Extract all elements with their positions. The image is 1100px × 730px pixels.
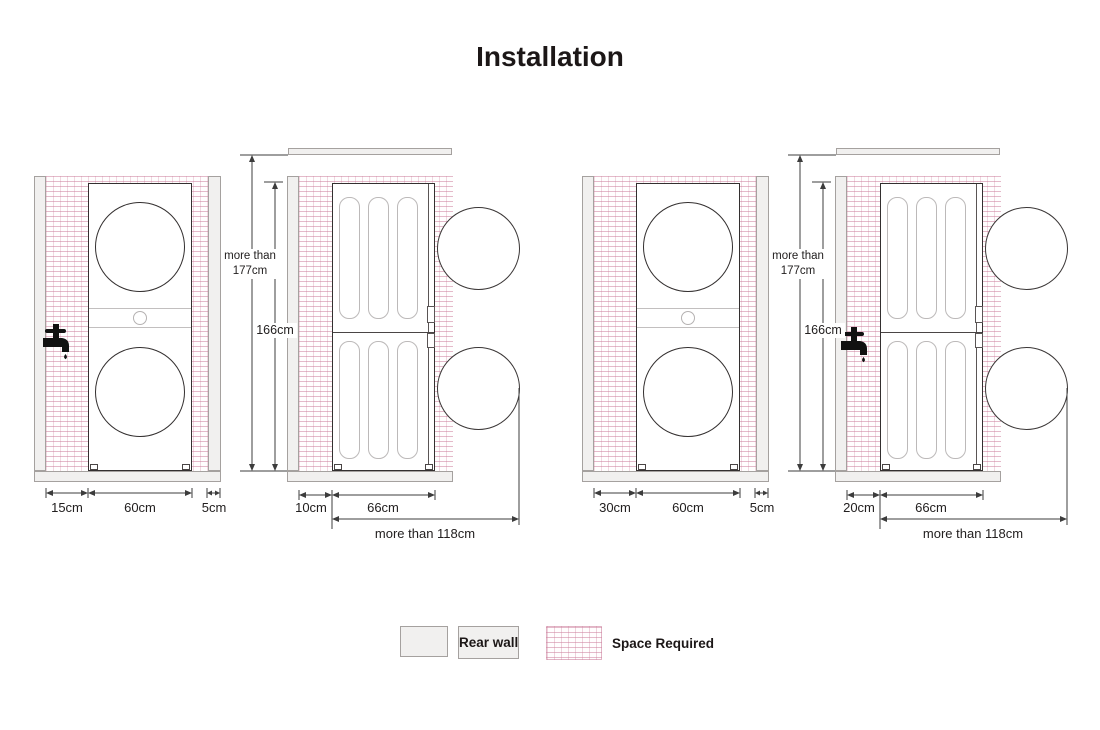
dim-label-width: 60cm — [661, 500, 715, 515]
side-vent-pill — [339, 341, 360, 459]
rear-wall-right-strip — [756, 176, 769, 471]
open-door-swing-top-circle — [985, 207, 1068, 290]
floor-front — [34, 471, 221, 482]
door-hinge-block — [427, 333, 435, 348]
dim-label-width: 60cm — [113, 500, 167, 515]
stack-divider-line — [333, 332, 434, 333]
door-edge-strip — [976, 184, 977, 470]
control-knob — [681, 311, 695, 325]
dim-label-total-height-line2: 177cm — [770, 264, 826, 279]
legend-space-required-swatch — [546, 626, 602, 660]
rear-wall-right-strip — [208, 176, 221, 471]
dim-label-total-height-line2: 177cm — [222, 264, 278, 279]
dim-label-left-gap: 15cm — [40, 500, 94, 515]
side-vent-pill — [397, 341, 418, 459]
door-hinge-block — [427, 306, 435, 323]
side-vent-pill — [339, 197, 360, 319]
side-vent-pill — [916, 197, 937, 319]
appliance-foot-left — [334, 464, 342, 470]
installation-diagram-left: 15cm 60cm 5cm 10cm 66cm more than 118cm … — [30, 145, 530, 545]
legend-rear-wall-label: Rear wall — [458, 626, 519, 659]
open-door-swing-bottom-circle — [437, 347, 520, 430]
ceiling-shelf — [836, 148, 1000, 155]
dim-label-door-clearance: more than 118cm — [903, 526, 1043, 541]
legend-rear-wall-swatch — [400, 626, 448, 657]
stack-divider-line — [881, 332, 982, 333]
open-door-swing-top-circle — [437, 207, 520, 290]
dim-label-unit-height: 166cm — [253, 323, 297, 338]
dryer-door-circle — [643, 202, 733, 292]
washer-dryer-stack-side — [332, 183, 435, 471]
appliance-foot-right — [425, 464, 433, 470]
door-hinge-block — [975, 306, 983, 323]
dim-label-unit-height: 166cm — [801, 323, 845, 338]
legend-space-required-label: Space Required — [612, 628, 714, 659]
dim-label-rear-gap: 20cm — [832, 500, 886, 515]
dryer-door-circle — [95, 202, 185, 292]
open-door-swing-bottom-circle — [985, 347, 1068, 430]
side-vent-pill — [945, 197, 966, 319]
dim-label-total-height-line1: more than — [222, 249, 278, 264]
ceiling-shelf — [288, 148, 452, 155]
washer-dryer-stack-front — [636, 183, 740, 471]
dim-label-left-gap: 30cm — [588, 500, 642, 515]
floor-side — [835, 471, 1001, 482]
faucet-icon — [43, 324, 69, 360]
appliance-foot-right — [973, 464, 981, 470]
dim-label-right-gap: 5cm — [740, 500, 784, 515]
installation-diagram-right: 30cm 60cm 5cm 20cm 66cm more than 118cm … — [578, 145, 1078, 545]
dim-label-rear-gap: 10cm — [284, 500, 338, 515]
appliance-foot-left — [638, 464, 646, 470]
dim-label-right-gap: 5cm — [192, 500, 236, 515]
dim-label-depth: 66cm — [356, 500, 410, 515]
appliance-foot-right — [182, 464, 190, 470]
door-edge-strip — [428, 184, 429, 470]
washer-door-circle — [643, 347, 733, 437]
page-title: Installation — [0, 40, 1100, 74]
floor-side — [287, 471, 453, 482]
side-vent-pill — [887, 341, 908, 459]
dim-label-total-height-line1: more than — [770, 249, 826, 264]
dim-label-total-height: more than 177cm — [222, 249, 278, 279]
appliance-foot-left — [90, 464, 98, 470]
side-vent-pill — [916, 341, 937, 459]
dim-label-depth: 66cm — [904, 500, 958, 515]
control-knob — [133, 311, 147, 325]
washer-dryer-stack-front — [88, 183, 192, 471]
washer-dryer-stack-side — [880, 183, 983, 471]
side-vent-pill — [368, 341, 389, 459]
dim-label-door-clearance: more than 118cm — [355, 526, 495, 541]
floor-front — [582, 471, 769, 482]
appliance-foot-left — [882, 464, 890, 470]
rear-wall-left-strip — [582, 176, 594, 471]
washer-door-circle — [95, 347, 185, 437]
side-vent-pill — [887, 197, 908, 319]
side-vent-pill — [368, 197, 389, 319]
appliance-foot-right — [730, 464, 738, 470]
installation-page: Installation — [0, 0, 1100, 730]
door-hinge-block — [975, 333, 983, 348]
side-vent-pill — [945, 341, 966, 459]
dim-label-total-height: more than 177cm — [770, 249, 826, 279]
side-vent-pill — [397, 197, 418, 319]
